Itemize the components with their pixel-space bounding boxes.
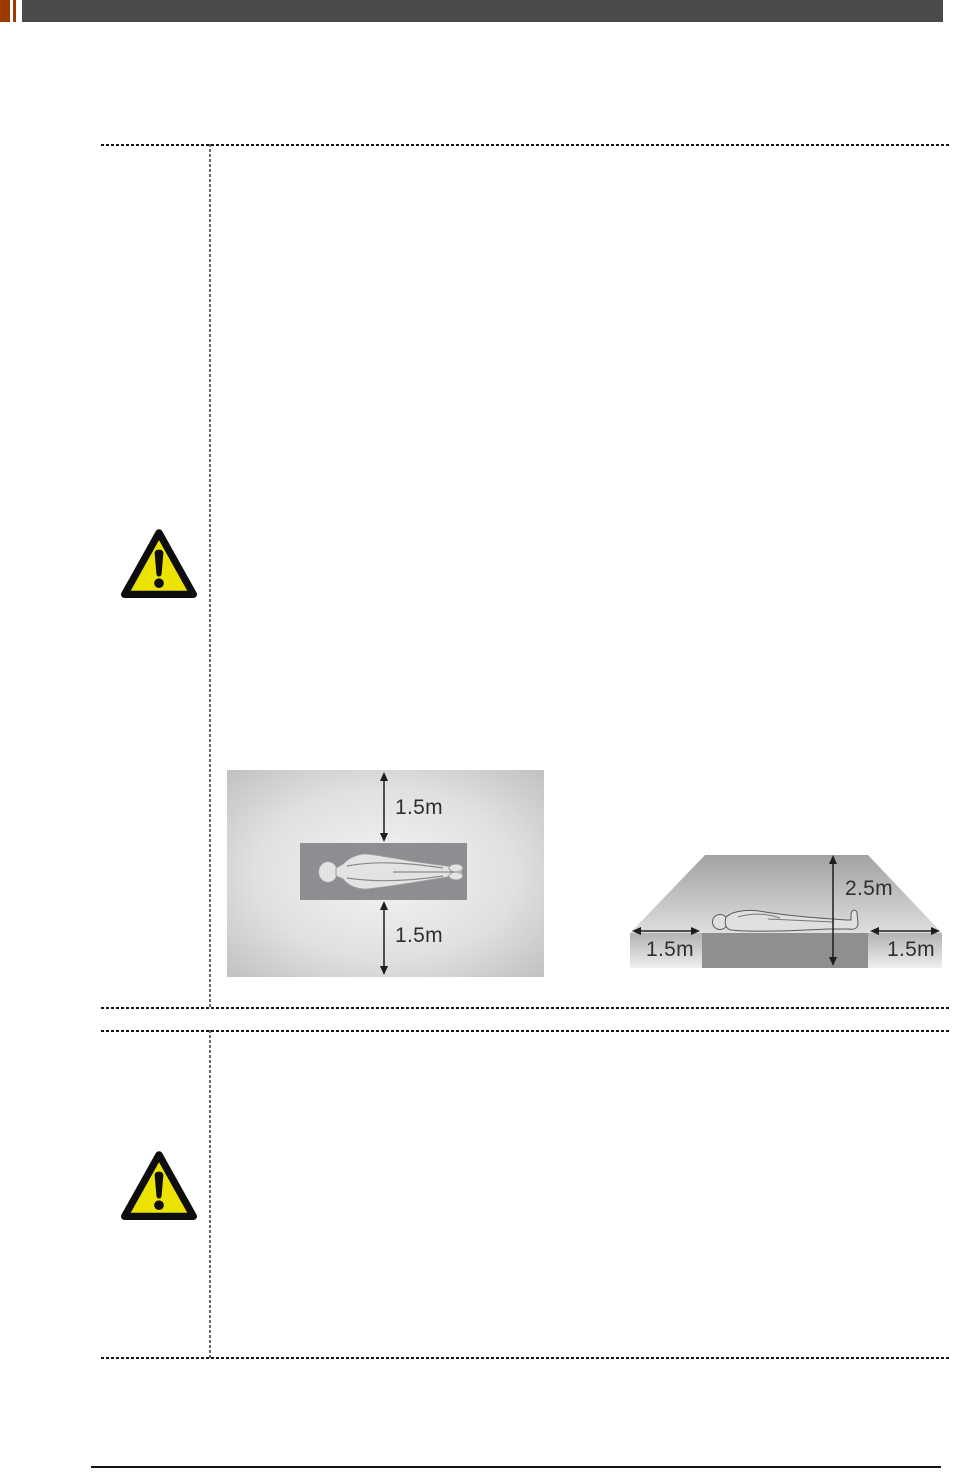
document-page: 1.5m 1.5m <box>0 0 956 1475</box>
column-divider-2 <box>209 1030 211 1359</box>
header-bar <box>22 0 943 22</box>
right-clearance-label: 1.5m <box>887 939 935 960</box>
height-clearance-label: 2.5m <box>845 878 893 899</box>
table-border-top-1 <box>101 144 950 146</box>
bed-base <box>702 933 868 968</box>
column-divider-1 <box>209 144 211 1009</box>
warning-triangle-icon <box>119 1149 199 1223</box>
top-clearance-label: 1.5m <box>395 797 443 818</box>
caution-row-2 <box>101 1030 950 1359</box>
table-border-bottom-1 <box>101 1007 950 1009</box>
top-view-diagram-graphic <box>227 770 544 977</box>
header-accent-line <box>13 0 16 22</box>
left-clearance-label: 1.5m <box>646 939 694 960</box>
warning-triangle-icon <box>119 527 199 601</box>
top-view-clearance-diagram: 1.5m 1.5m <box>227 770 544 977</box>
table-border-bottom-2 <box>101 1357 950 1359</box>
header-accent-block <box>0 0 10 22</box>
bottom-clearance-label: 1.5m <box>395 925 443 946</box>
footer-rule <box>91 1466 941 1468</box>
side-view-clearance-diagram: 1.5m 2.5m 1.5m <box>630 847 943 968</box>
table-border-top-2 <box>101 1030 950 1032</box>
caution-row-1: 1.5m 1.5m <box>101 144 950 1009</box>
